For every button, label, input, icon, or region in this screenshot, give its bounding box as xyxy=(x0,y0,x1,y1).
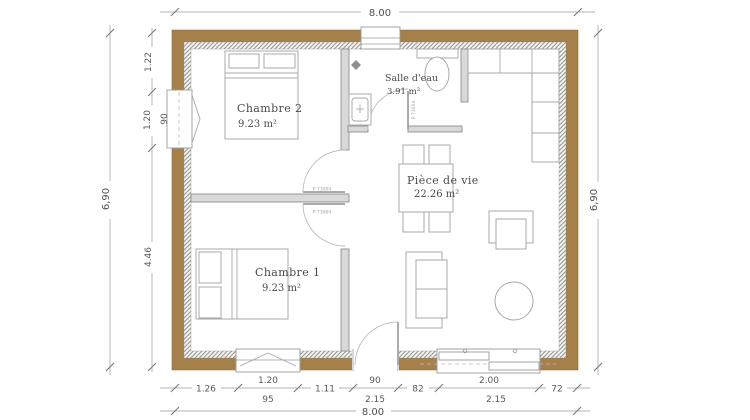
room-area-piecedevie: 22.26 m² xyxy=(414,189,459,200)
dim-right-overall: 6,90 xyxy=(589,25,604,375)
dim-bottom-overall: 8.00 xyxy=(160,405,590,418)
dim-top-overall-label: 8.00 xyxy=(369,8,391,19)
top-window xyxy=(361,27,400,49)
room-area-salledeau: 3.91 m² xyxy=(387,87,420,97)
dim-bottom-seg3: 1.11 xyxy=(315,385,335,395)
toilet xyxy=(417,49,458,91)
dim-entrydoor-height: 2.15 xyxy=(365,395,385,405)
dim-left-seg1: 1.22 xyxy=(144,52,154,72)
kitchen-counter xyxy=(468,49,559,162)
chambre1-window xyxy=(236,349,300,372)
wall-chambre1-right xyxy=(341,249,349,351)
wall-salledeau-bottom-right xyxy=(408,126,462,132)
dim-bottom-seg5: 82 xyxy=(412,385,423,395)
dim-top-overall: 8.00 xyxy=(160,5,595,19)
wall-between-bedrooms xyxy=(191,194,349,202)
dim-left-window-height: 90 xyxy=(160,113,170,125)
dim-left-chain: 1.22 1.20 90 4.46 xyxy=(143,28,170,372)
dim-right-overall-label: 6,90 xyxy=(589,189,600,211)
dim-left-seg2: 1.20 xyxy=(143,110,153,130)
dim-bottom-seg6: 2.00 xyxy=(479,376,499,386)
sofa xyxy=(406,252,447,328)
floor-plan: P 73004 P 73004 P 73004 xyxy=(0,0,750,420)
chambre2-door: P 73004 xyxy=(303,150,345,193)
room-name-salledeau: Salle d'eau xyxy=(385,73,438,84)
chambre2-door-code: P 73004 xyxy=(313,187,332,193)
dim-bottom-chain: 1.26 1.20 1.11 90 82 2.00 72 xyxy=(160,376,590,395)
room-name-chambre2: Chambre 2 xyxy=(237,102,302,115)
dim-left-overall: 6,90 xyxy=(101,25,116,375)
dim-window1-height: 95 xyxy=(262,395,273,405)
washbasin xyxy=(349,94,371,125)
floorplan-canvas: P 73004 P 73004 P 73004 xyxy=(0,0,750,420)
dim-left-overall-label: 6,90 xyxy=(101,188,112,210)
chambre1-door-code: P 73004 xyxy=(313,210,332,216)
wall-kitchen xyxy=(461,49,468,102)
dim-left-seg3: 4.46 xyxy=(144,247,154,267)
left-window xyxy=(167,90,200,148)
ceiling-point-icon xyxy=(351,60,361,70)
wall-chambre2-right xyxy=(341,49,349,150)
dim-bottom-seg2: 1.20 xyxy=(258,376,278,386)
furniture xyxy=(196,49,559,328)
dim-bottom-secondary: 95 2.15 2.15 xyxy=(262,395,506,405)
room-name-piecedevie: Pièce de vie xyxy=(407,174,479,187)
dim-bottom-seg1: 1.26 xyxy=(196,385,216,395)
salledeau-door-code: P 73004 xyxy=(411,101,417,120)
round-side-table xyxy=(495,282,533,320)
wall-salledeau-bottom-left xyxy=(348,126,368,132)
bay-window xyxy=(420,349,556,373)
dim-bay-height: 2.15 xyxy=(486,395,506,405)
chambre1-door: P 73004 xyxy=(303,204,345,246)
armchair xyxy=(489,211,533,249)
dim-bottom-seg7: 72 xyxy=(551,385,562,395)
room-name-chambre1: Chambre 1 xyxy=(255,266,320,279)
room-area-chambre1: 9.23 m² xyxy=(262,283,301,294)
room-area-chambre2: 9.23 m² xyxy=(238,119,277,130)
dim-bottom-seg4: 90 xyxy=(369,376,381,386)
entry-door xyxy=(352,322,399,372)
dim-bottom-overall-label: 8.00 xyxy=(362,407,384,418)
